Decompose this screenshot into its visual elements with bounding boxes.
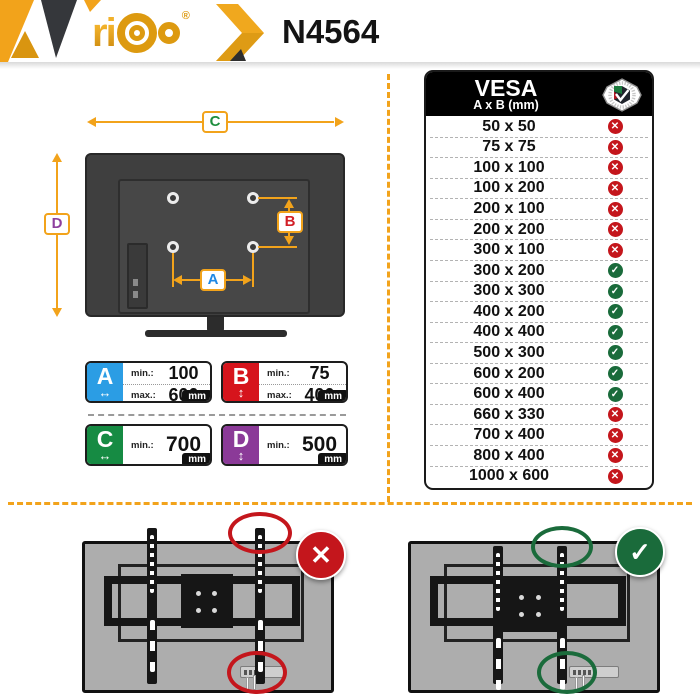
check-icon: ✓ bbox=[588, 366, 642, 381]
dim-ext-line bbox=[252, 253, 254, 287]
min-value: 100 bbox=[157, 363, 210, 384]
table-row: 800 x 400✕ bbox=[430, 445, 648, 466]
check-icon: ✓ bbox=[588, 387, 642, 402]
table-row: 500 x 300✓ bbox=[430, 342, 648, 363]
table-row: 100 x 100✕ bbox=[430, 157, 648, 178]
dim-label-b: B bbox=[277, 211, 303, 233]
ok-circle-bottom bbox=[537, 651, 597, 694]
arrow-up-icon bbox=[284, 199, 294, 208]
vesa-size-value: 300 x 100 bbox=[430, 241, 588, 259]
check-icon: ✓ bbox=[588, 345, 642, 360]
table-row: 400 x 200✓ bbox=[430, 301, 648, 322]
tv-connector-cutout bbox=[127, 243, 148, 309]
plate-hole bbox=[536, 612, 541, 617]
vertical-arrow-icon: ↕ bbox=[238, 450, 245, 462]
vesa-hole bbox=[167, 241, 179, 253]
arrow-right-icon bbox=[243, 275, 252, 285]
horizontal-arrow-icon: ↔ bbox=[99, 387, 112, 399]
dim-box-a: A ↔ min.:100 max.:600 mm bbox=[85, 361, 212, 403]
unit-badge: mm bbox=[182, 390, 212, 403]
chevron-right-icon bbox=[214, 3, 268, 62]
vesa-size-value: 660 x 330 bbox=[430, 406, 588, 424]
mount-rail bbox=[147, 528, 157, 684]
min-label: min.: bbox=[267, 440, 293, 451]
dim-ext-line bbox=[258, 246, 297, 248]
cross-icon: ✕ bbox=[588, 160, 642, 175]
check-icon: ✓ bbox=[588, 263, 642, 278]
dim-box-d: D ↕ min.:500 mm bbox=[221, 424, 348, 466]
arrow-left-icon bbox=[173, 275, 182, 285]
vesa-size-value: 100 x 100 bbox=[430, 159, 588, 177]
check-icon: ✓ bbox=[588, 304, 642, 319]
vesa-compatibility-table: VESA A x B (mm) 50 x 50✕75 x 75✕100 x 10… bbox=[424, 70, 654, 490]
min-label: min.: bbox=[267, 368, 293, 379]
vesa-size-value: 400 x 200 bbox=[430, 303, 588, 321]
vesa-standard-badge-icon bbox=[602, 78, 642, 112]
table-row: 600 x 200✓ bbox=[430, 363, 648, 384]
product-model-title: N4564 bbox=[282, 13, 379, 51]
header-shadow bbox=[0, 62, 700, 69]
mount-plate bbox=[181, 574, 233, 628]
cross-icon: ✕ bbox=[588, 181, 642, 196]
cross-icon: ✕ bbox=[588, 469, 642, 484]
cross-badge-icon: ✕ bbox=[296, 530, 346, 580]
vesa-rows: 50 x 50✕75 x 75✕100 x 100✕100 x 200✕200 … bbox=[426, 116, 652, 488]
plate-hole bbox=[519, 612, 524, 617]
registered-mark: ® bbox=[182, 10, 190, 22]
vesa-size-value: 800 x 400 bbox=[430, 447, 588, 465]
dim-line-d bbox=[56, 160, 58, 310]
table-row: 300 x 300✓ bbox=[430, 281, 648, 302]
connector-mark bbox=[133, 279, 138, 286]
plate-hole bbox=[536, 595, 541, 600]
connector-mark bbox=[133, 291, 138, 298]
dim-label-c: C bbox=[202, 111, 228, 133]
vesa-size-value: 200 x 100 bbox=[430, 200, 588, 218]
table-row: 200 x 200✕ bbox=[430, 219, 648, 240]
vertical-arrow-icon: ↕ bbox=[238, 387, 245, 399]
vesa-hole bbox=[167, 192, 179, 204]
table-row: 50 x 50✕ bbox=[430, 117, 648, 137]
table-row: 100 x 200✕ bbox=[430, 178, 648, 199]
cross-icon: ✕ bbox=[588, 428, 642, 443]
cross-icon: ✕ bbox=[588, 119, 642, 134]
plate-hole bbox=[519, 595, 524, 600]
dim-key-d: D ↕ bbox=[223, 426, 259, 464]
vesa-size-value: 200 x 200 bbox=[430, 221, 588, 239]
dim-box-c: C ↔ min.:700 mm bbox=[85, 424, 212, 466]
brand-logo-text: ri bbox=[92, 13, 115, 53]
arrow-right-icon bbox=[335, 117, 344, 127]
mount-plate bbox=[503, 578, 557, 632]
cross-icon: ✕ bbox=[588, 243, 642, 258]
dim-key-a: A ↔ bbox=[87, 363, 123, 401]
cross-icon: ✕ bbox=[588, 222, 642, 237]
vesa-size-value: 300 x 300 bbox=[430, 282, 588, 300]
dim-box-b: B ↕ min.:75 max.:400 mm bbox=[221, 361, 348, 403]
vesa-size-value: 600 x 200 bbox=[430, 365, 588, 383]
vertical-dashed-divider bbox=[387, 74, 390, 502]
check-badge-icon: ✓ bbox=[615, 527, 665, 577]
horizontal-arrow-icon: ↔ bbox=[99, 450, 112, 462]
brand-logo-o-icon bbox=[158, 22, 180, 44]
table-row: 300 x 100✕ bbox=[430, 239, 648, 260]
cross-icon: ✕ bbox=[588, 407, 642, 422]
vesa-table-header: VESA A x B (mm) bbox=[426, 72, 652, 116]
vesa-size-value: 300 x 200 bbox=[430, 262, 588, 280]
dim-letter: D bbox=[233, 428, 250, 450]
tv-stand-base bbox=[145, 330, 287, 337]
dim-key-b: B ↕ bbox=[223, 363, 259, 401]
vesa-size-value: 100 x 200 bbox=[430, 179, 588, 197]
header: ri ® N4564 bbox=[0, 0, 700, 62]
min-label: min.: bbox=[131, 440, 157, 451]
dim-key-c: C ↔ bbox=[87, 426, 123, 464]
check-icon: ✓ bbox=[588, 325, 642, 340]
cross-icon: ✕ bbox=[588, 202, 642, 217]
dim-letter: C bbox=[97, 428, 114, 450]
boxes-dashed-separator bbox=[88, 414, 346, 416]
cross-icon: ✕ bbox=[588, 140, 642, 155]
brand-logo-dot-icon bbox=[129, 25, 145, 41]
mount-rail bbox=[493, 546, 503, 684]
vesa-subtitle: A x B (mm) bbox=[426, 99, 586, 112]
brand-logo-ring-icon bbox=[117, 13, 157, 53]
table-row: 600 x 400✓ bbox=[430, 383, 648, 404]
plate-hole bbox=[196, 608, 201, 613]
vesa-title: VESA bbox=[426, 77, 586, 99]
problem-circle-bottom bbox=[227, 651, 287, 694]
plate-hole bbox=[212, 608, 217, 613]
min-label: min.: bbox=[131, 368, 157, 379]
problem-circle-top bbox=[228, 512, 292, 554]
unit-badge: mm bbox=[318, 390, 348, 403]
vesa-size-value: 700 x 400 bbox=[430, 426, 588, 444]
table-row: 75 x 75✕ bbox=[430, 137, 648, 158]
table-row: 1000 x 600✕ bbox=[430, 466, 648, 487]
unit-badge: mm bbox=[182, 453, 212, 466]
arrow-left-icon bbox=[87, 117, 96, 127]
brand-logo: ri ® bbox=[92, 10, 190, 56]
dim-letter: A bbox=[97, 365, 114, 387]
dim-letter: B bbox=[233, 365, 250, 387]
table-row: 300 x 200✓ bbox=[430, 260, 648, 281]
table-row: 660 x 330✕ bbox=[430, 404, 648, 425]
max-label: max.: bbox=[131, 390, 157, 401]
dim-label-d: D bbox=[44, 213, 70, 235]
unit-badge: mm bbox=[318, 453, 348, 466]
vesa-size-value: 50 x 50 bbox=[430, 118, 588, 136]
max-label: max.: bbox=[267, 390, 293, 401]
vesa-size-value: 400 x 400 bbox=[430, 323, 588, 341]
vesa-size-value: 75 x 75 bbox=[430, 138, 588, 156]
arrow-down-icon bbox=[52, 308, 62, 317]
plate-hole bbox=[212, 591, 217, 596]
ok-circle-top bbox=[531, 526, 593, 568]
vesa-size-value: 1000 x 600 bbox=[430, 467, 588, 485]
arrow-down-icon bbox=[284, 236, 294, 245]
tv-stand-neck bbox=[207, 317, 224, 331]
infographic-canvas: ri ® N4564 C bbox=[0, 0, 700, 700]
min-value: 75 bbox=[293, 363, 346, 384]
table-row: 700 x 400✕ bbox=[430, 424, 648, 445]
table-row: 200 x 100✕ bbox=[430, 198, 648, 219]
plate-hole bbox=[196, 591, 201, 596]
cross-icon: ✕ bbox=[588, 448, 642, 463]
vesa-size-value: 600 x 400 bbox=[430, 385, 588, 403]
horizontal-dashed-divider bbox=[8, 502, 692, 505]
arrow-up-icon bbox=[52, 153, 62, 162]
vesa-size-value: 500 x 300 bbox=[430, 344, 588, 362]
check-icon: ✓ bbox=[588, 284, 642, 299]
dim-label-a: A bbox=[200, 269, 226, 291]
table-row: 400 x 400✓ bbox=[430, 322, 648, 343]
